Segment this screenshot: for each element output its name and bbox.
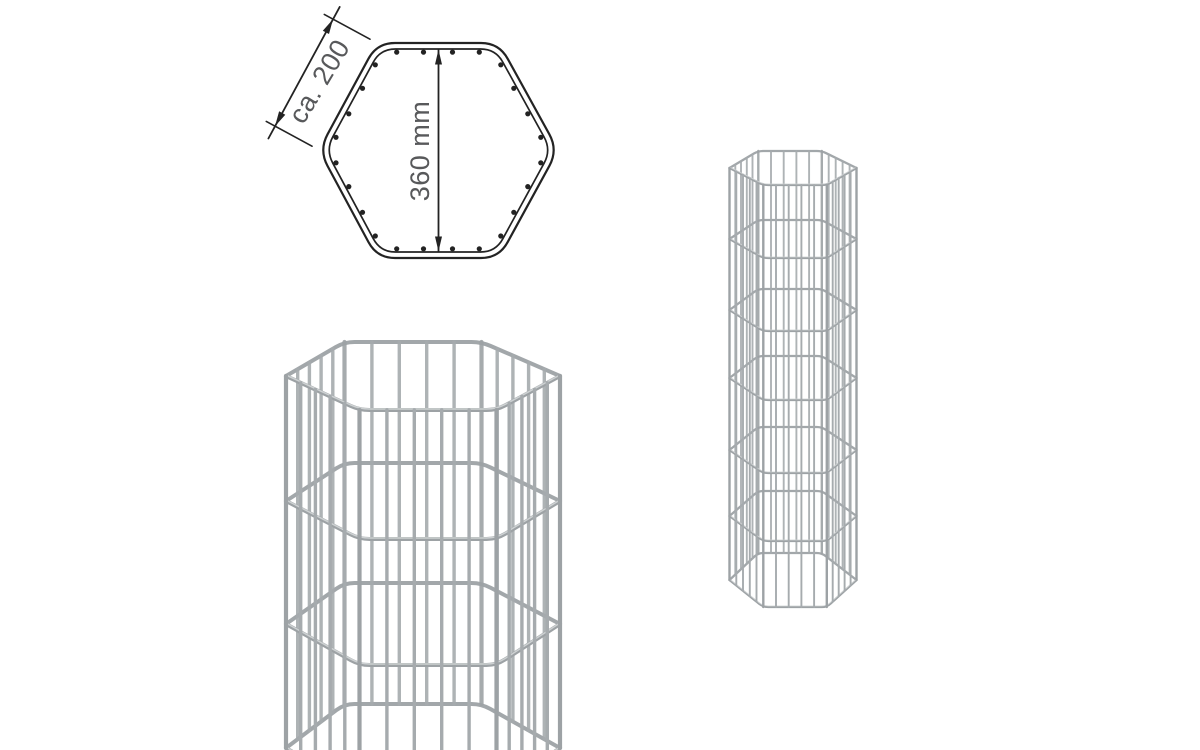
gabion-column-full [730, 151, 857, 607]
gabion-column-closeup [286, 342, 560, 750]
dimension-width-label: 360 mm [405, 101, 435, 202]
gabion-product-image: ca. 200 360 mm [0, 0, 1200, 750]
scene-svg: ca. 200 360 mm [0, 0, 1200, 750]
